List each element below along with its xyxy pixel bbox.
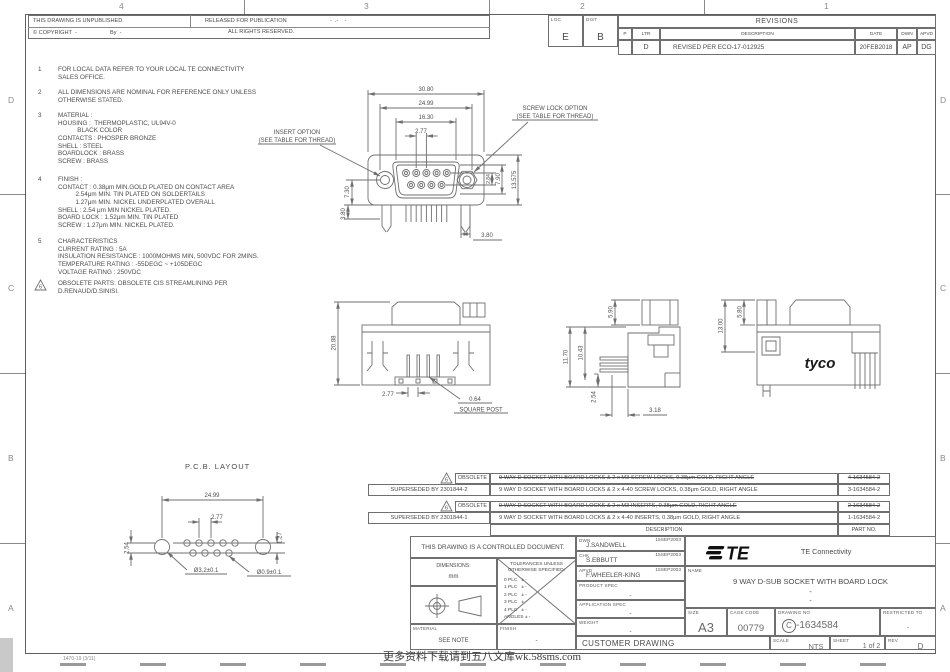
drawing-no-label: DRAWING NO: [778, 610, 810, 615]
drawing-no-number: -1634584: [796, 620, 838, 631]
insert-option-label: INSERT OPTION: [274, 130, 320, 136]
row2-desc: 9 WAY D SOCKET WITH BOARD LOCKS & 2 x 4-…: [491, 485, 845, 495]
weight-cell: WEIGHT -: [576, 618, 685, 636]
row4-superseded: SUPERSEDED BY 2301844-1: [369, 513, 489, 523]
dim-2-77-side: 2.77: [382, 392, 394, 398]
zone-col-3: 3: [364, 1, 369, 11]
rev-row-ltr: D: [632, 40, 660, 55]
zone-row-c-right: C: [940, 283, 946, 293]
zone-tick: [704, 0, 705, 14]
row2-desc-cell: 9 WAY D SOCKET WITH BOARD LOCKS & 2 x 4-…: [490, 484, 838, 496]
pcb-layout-title: P.C.B. LAYOUT: [185, 462, 250, 471]
corner-artifact: [0, 638, 13, 672]
note-4-text: FINISH : CONTACT : 0.38μm MIN.GOLD PLATE…: [58, 176, 234, 230]
finish-cell: FINISH -: [497, 624, 576, 650]
rev-row-desc-value: REVISED PER ECO-17-012925: [661, 41, 866, 54]
dim-2-84: 2.84: [486, 174, 492, 184]
dim-7-30: 7.30: [345, 186, 351, 198]
parts-col-part: PART NO.: [838, 524, 890, 537]
rear-view-outline: [757, 300, 880, 397]
pcb-dimensions: [127, 496, 291, 576]
row3-status-box: OBSOLETE: [455, 501, 490, 513]
section-view-drawing: 5.90 11.70 10.43 2.54 3.18: [555, 293, 710, 428]
dimensions-label: DIMENSIONS:: [411, 563, 496, 569]
note-1-text: FOR LOCAL DATA REFER TO YOUR LOCAL TE CO…: [58, 66, 244, 81]
note-1-num: 1: [38, 66, 52, 73]
te-logo-text: TE: [726, 544, 750, 564]
rev-cell: REV D: [885, 636, 936, 650]
screw-lock-label: SCREW LOCK OPTION: [522, 106, 587, 112]
row4-part-cell: 1-1634584-2: [838, 512, 890, 524]
row1-status: OBSOLETE: [456, 474, 489, 484]
dim-3-80-right: 3.80: [481, 233, 493, 239]
drawing-name: 9 WAY D-SUB SOCKET WITH BOARD LOCK: [686, 577, 935, 586]
tyco-logo: tyco: [805, 355, 836, 372]
zone-tick: [936, 194, 950, 195]
rights-text: ALL RIGHTS RESERVED.: [228, 29, 294, 35]
dwn-date: 15SEP2003: [655, 538, 681, 543]
row1-desc-cell: 9 WAY D SOCKET WITH BOARD LOCKS & 2 x M3…: [490, 473, 838, 485]
unpublished-text: THIS DRAWING IS UNPUBLISHED.: [33, 18, 124, 24]
dim-2-54-section: 2.54: [592, 391, 598, 403]
material-cell: MATERIAL SEE NOTE: [410, 624, 497, 650]
side-view-dimensions: [334, 302, 508, 413]
note-6-num: 6: [39, 285, 42, 291]
note-5-num: 5: [38, 238, 52, 245]
revisions-title: REVISIONS: [619, 16, 935, 27]
apvd-date: 15SEP2003: [655, 568, 681, 573]
side-view-drawing: 20.88 2.77 0.64 SQUARE POST: [330, 293, 545, 428]
rev-row-p: [618, 40, 632, 55]
name-cell: NAME 9 WAY D-SUB SOCKET WITH BOARD LOCK …: [685, 566, 936, 608]
restricted-label: RESTRICTED TO: [883, 610, 922, 615]
zone-row-d-right: D: [940, 95, 946, 105]
side-view-outline: [362, 302, 490, 385]
released-text: RELEASED FOR PUBLICATION: [205, 18, 287, 24]
row4-desc: 9 WAY D SOCKET WITH BOARD LOCKS & 2 x 4-…: [491, 513, 845, 523]
rear-view-dim-labels: 5.80 13.00 tyco: [719, 306, 836, 372]
zone-col-4: 4: [119, 1, 124, 11]
row4-part: 1-1634584-2: [839, 513, 889, 523]
dimensions-unit: mm: [411, 574, 496, 580]
revisions-title-row: REVISIONS: [618, 15, 936, 28]
dimensions-cell: DIMENSIONS: mm: [410, 558, 497, 586]
dim-3-80-left: 3.80: [341, 208, 347, 220]
obsolete-flag-triangle: 6: [440, 472, 453, 484]
rev-col-date: DATE: [855, 28, 897, 40]
engineering-drawing-sheet: { "zones": {"top": ["4","3","2","1"], "s…: [0, 0, 950, 672]
dim-pcb-2-54: 2.54: [125, 542, 131, 554]
size-cell: SIZE A3: [685, 608, 727, 636]
row2-part: 3-1634584-2: [839, 485, 889, 495]
zone-tick: [936, 373, 950, 374]
tol-row-5: ANGLES ± -: [504, 614, 530, 621]
rev-col-desc: DESCRIPTION: [660, 28, 855, 40]
rev-col-apvd: APVD: [917, 28, 936, 40]
dim-pcb-2-77: 2.77: [211, 515, 223, 521]
parts-col-desc-label: DESCRIPTION: [491, 525, 837, 536]
tol-row-1: 1 PLC ± -: [504, 584, 530, 591]
note-3-text: MATERIAL : HOUSING : THERMOPLASTIC, UL94…: [58, 112, 176, 166]
parts-col-desc: DESCRIPTION: [490, 524, 838, 537]
controlled-doc-cell: THIS DRAWING IS A CONTROLLED DOCUMENT.: [410, 536, 576, 558]
rev-row-dwn: AP: [897, 40, 917, 55]
finish-label: FINISH: [500, 626, 516, 631]
dim-11-70: 11.70: [564, 349, 570, 364]
rev-row-date-value: 20FEB2018: [856, 41, 896, 54]
row3-part-cell: 2-1634584-2: [838, 501, 890, 513]
rev-row-desc: REVISED PER ECO-17-012925: [660, 40, 855, 55]
dim-13-00: 13.00: [719, 318, 725, 334]
cage-code-cell: CAGE CODE 00779: [727, 608, 775, 636]
zone-row-a-left: A: [8, 603, 14, 613]
rev-col-p-label: P: [619, 29, 631, 39]
divider: [28, 27, 490, 28]
product-spec-label: PRODUCT SPEC: [579, 583, 618, 588]
chk-cell: CHK 15SEP2003 S.EBBUTT: [576, 551, 685, 566]
rev-col-ltr: LTR: [632, 28, 660, 40]
dim-16-30: 16.30: [418, 115, 434, 121]
drawing-no-prefix-circle: C: [782, 619, 796, 633]
zone-tick: [489, 0, 490, 14]
tol-row-4: 4 PLC ± -: [504, 607, 530, 614]
rev-col-desc-label: DESCRIPTION: [661, 29, 854, 39]
watermark-text: 更多资料下载请到五八文库wk.58sms.com: [383, 648, 581, 664]
zone-tick: [0, 194, 25, 195]
released-date: - .- -: [330, 18, 346, 24]
row3-desc: 9 WAY D SOCKET WITH BOARD LOCKS & 2 x M3…: [491, 502, 845, 512]
dim-13-575: 13.575: [512, 170, 518, 189]
cage-code-label: CAGE CODE: [730, 610, 759, 615]
dim-24-99: 24.99: [418, 101, 434, 107]
customer-drawing-text: CUSTOMER DRAWING: [577, 637, 774, 649]
size-label: SIZE: [688, 610, 699, 615]
zone-tick: [244, 0, 245, 14]
zone-row-d-left: D: [8, 95, 14, 105]
dim-2-77: 2.77: [415, 129, 427, 135]
rev-col-ltr-label: LTR: [633, 29, 659, 39]
rev-row-apvd: DG: [917, 40, 936, 55]
rev-col-dwn-label: DWN: [898, 29, 916, 39]
obsolete-flag-num: 6: [445, 506, 448, 512]
sheet-cell: SHEET 1 of 2: [830, 636, 885, 650]
note-5-text: CHARACTERISTICS CURRENT RATING : 5A INSU…: [58, 238, 259, 276]
application-spec-label: APPLICATION SPEC: [579, 602, 626, 607]
row1-status-box: OBSOLETE: [455, 473, 490, 485]
brand-name: TE Connectivity: [801, 547, 851, 556]
row1-part: 4-1634584-2: [839, 474, 889, 484]
loc-label: LOC: [551, 17, 561, 22]
copyright-text: © COPYRIGHT -: [33, 30, 77, 36]
chk-name: S.EBBUTT: [586, 557, 617, 564]
row1-desc: 9 WAY D SOCKET WITH BOARD LOCKS & 2 x M3…: [491, 474, 845, 484]
weight-label: WEIGHT: [579, 620, 599, 625]
te-logo-cell: TE TE Connectivity: [685, 536, 936, 566]
rear-view-drawing: 5.80 13.00 tyco: [700, 293, 885, 428]
rev-row-dwn-value: AP: [898, 41, 916, 54]
row2-part-cell: 3-1634584-2: [838, 484, 890, 496]
zone-tick: [936, 543, 950, 544]
square-post-label: SQUARE POST: [459, 408, 503, 414]
tol-row-0: 0 PLC ± -: [504, 577, 530, 584]
rev-label: REV: [888, 638, 898, 643]
dim-10-43: 10.43: [579, 345, 585, 361]
dwn-cell: DWN 15SEP2003 J.SANDWELL: [576, 536, 685, 551]
parts-col-part-label: PART NO.: [839, 525, 889, 536]
dim-hole-big: Ø3.2±0.1: [194, 568, 219, 574]
dim-5-90: 5.90: [609, 306, 615, 318]
zone-row-a-right: A: [940, 603, 946, 613]
tol-row-2: 2 PLC ± -: [504, 592, 530, 599]
scale-cell: SCALE NTS: [770, 636, 830, 650]
dim-20-88: 20.88: [332, 335, 338, 351]
note-3-num: 3: [38, 112, 52, 119]
zone-row-b-left: B: [8, 453, 14, 463]
tol-row-3: 3 PLC ± -: [504, 599, 530, 606]
scale-label: SCALE: [773, 638, 789, 643]
controlled-doc-text: THIS DRAWING IS A CONTROLLED DOCUMENT.: [411, 537, 575, 557]
rev-col-p: P: [618, 28, 632, 40]
dim-7-90: 7.90: [496, 173, 502, 185]
drawing-name-sub2: -: [686, 598, 935, 605]
drawing-no-cell: DRAWING NO C-1634584: [775, 608, 880, 636]
chk-date: 15SEP2003: [655, 553, 681, 558]
dim-3-18: 3.18: [649, 408, 661, 414]
row2-superseded: SUPERSEDED BY 2301844-2: [369, 485, 489, 495]
product-spec-cell: PRODUCT SPEC -: [576, 581, 685, 600]
drawing-no-value: C-1634584: [782, 619, 838, 633]
rev-row-date: 20FEB2018: [855, 40, 897, 55]
te-logo: TE: [708, 543, 770, 562]
name-label: NAME: [688, 568, 702, 573]
screw-lock-note: (SEE TABLE FOR THREAD): [517, 114, 594, 120]
application-spec-cell: APPLICATION SPEC -: [576, 600, 685, 619]
rev-col-date-label: DATE: [856, 29, 896, 39]
zone-row-c-left: C: [8, 283, 14, 293]
tolerances-label: TOLERANCES UNLESS OTHERWISE SPECIFIED:: [498, 562, 575, 574]
pcb-dim-labels: 24.99 2.77 2.54 1.27 Ø3.2±0.1 Ø0.9±0.1: [125, 493, 284, 576]
copyright-by: By -: [110, 30, 122, 36]
rev-row-apvd-value: DG: [918, 41, 935, 54]
zone-tick: [0, 543, 25, 544]
note-2-text: ALL DIMENSIONS ARE NOMINAL FOR REFERENCE…: [58, 89, 256, 104]
dim-pcb-24-99: 24.99: [204, 493, 220, 499]
zone-row-b-right: B: [940, 453, 946, 463]
customer-drawing-box: CUSTOMER DRAWING: [576, 636, 770, 650]
row3-desc-cell: 9 WAY D SOCKET WITH BOARD LOCKS & 2 x M3…: [490, 501, 838, 513]
drawing-name-sub1: -: [686, 589, 935, 596]
dim-5-80: 5.80: [738, 306, 744, 318]
dist-label: DIST: [586, 17, 597, 22]
note-6-flag-triangle: 6: [34, 279, 47, 291]
zone-col-1: 1: [824, 1, 829, 11]
row2-superseded-box: SUPERSEDED BY 2301844-2: [368, 484, 490, 496]
apvd-cell: APVD 15SEP2003 F.WHEELER-KING: [576, 566, 685, 581]
rev-col-dwn: DWN: [897, 28, 917, 40]
note-2-num: 2: [38, 89, 52, 96]
rev-col-apvd-label: APVD: [918, 29, 935, 39]
sheet-label: SHEET: [833, 638, 849, 643]
note-6-text: OBSOLETE PARTS: OBSOLETE CIS STREAMLININ…: [58, 280, 227, 295]
material-label: MATERIAL: [413, 626, 437, 631]
zone-tick: [0, 373, 25, 374]
dim-30-80: 30.80: [418, 87, 434, 93]
apvd-name: F.WHEELER-KING: [586, 572, 640, 579]
rev-row-ltr-value: D: [633, 41, 659, 54]
zone-col-2: 2: [580, 1, 585, 11]
note-4-num: 4: [38, 176, 52, 183]
dim-pcb-1-27: 1.27: [278, 532, 284, 544]
dwn-name: J.SANDWELL: [586, 542, 626, 549]
projection-cell: [410, 586, 497, 624]
front-view-drawing: 30.80 24.99 16.30 2.77 7.30 2.84 7.90 13…: [240, 78, 630, 242]
insert-option-note: (SEE TABLE FOR THREAD): [259, 138, 336, 144]
obsolete-flag-triangle: 6: [440, 500, 453, 512]
row3-part: 2-1634584-2: [839, 502, 889, 512]
pcb-holes: [153, 540, 285, 557]
form-number: 1470-19 (3/11): [63, 656, 95, 662]
dim-0-64: 0.64: [469, 397, 481, 403]
dim-hole-small: Ø0.9±0.1: [257, 570, 282, 576]
pcb-layout-drawing: 24.99 2.77 2.54 1.27 Ø3.2±0.1 Ø0.9±0.1: [115, 472, 345, 587]
dist-box: DIST B: [583, 15, 618, 47]
row4-desc-cell: 9 WAY D SOCKET WITH BOARD LOCKS & 2 x 4-…: [490, 512, 838, 524]
divider: [190, 15, 191, 27]
loc-box: LOC E: [548, 15, 583, 47]
tolerances-cell: TOLERANCES UNLESS OTHERWISE SPECIFIED: 0…: [497, 558, 576, 624]
projection-symbol-icon: [423, 592, 487, 620]
obsolete-flag-num: 6: [445, 478, 448, 484]
restricted-cell: RESTRICTED TO -: [880, 608, 936, 636]
row4-superseded-box: SUPERSEDED BY 2301844-1: [368, 512, 490, 524]
row3-status: OBSOLETE: [456, 502, 489, 512]
row1-part-cell: 4-1634584-2: [838, 473, 890, 485]
